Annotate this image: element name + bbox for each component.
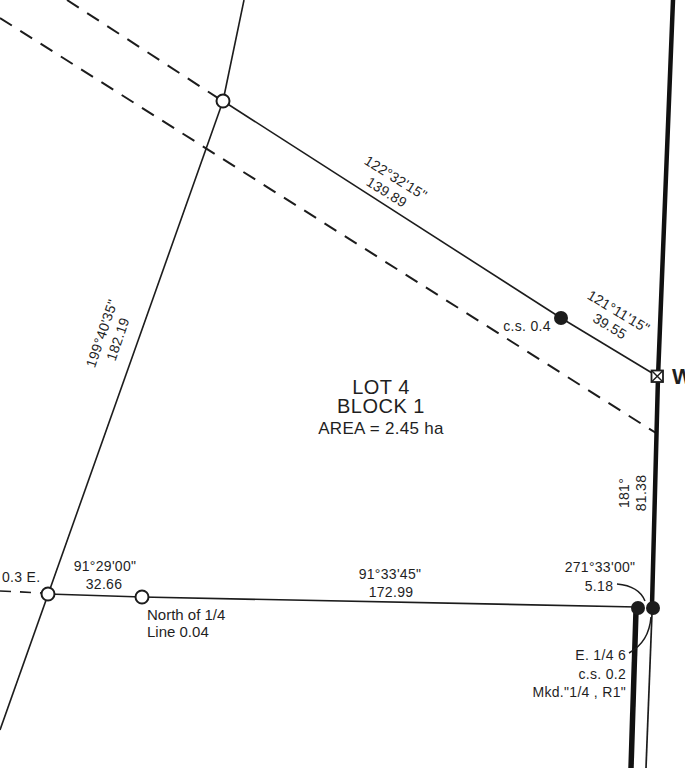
filled-monument-se-right <box>646 601 660 615</box>
road-line-lower <box>631 611 636 768</box>
east-line-bearing: 181° <box>616 478 632 508</box>
note-corner-line-1: E. 1/4 6 <box>575 647 626 663</box>
west-boundary-upper <box>223 0 244 101</box>
road-name-letter: W <box>672 364 685 389</box>
leader-5-18 <box>617 584 645 601</box>
south-seg1-distance: 32.66 <box>86 576 123 592</box>
label-north-seg2: 121°11'15" 39.55 <box>576 287 653 351</box>
open-monument-nw <box>217 95 230 108</box>
filled-monument-north <box>554 311 568 325</box>
road-line-upper <box>652 0 673 606</box>
note-quarter-line-2: Line 0.04 <box>147 623 209 640</box>
east-thin-line-lower <box>646 613 652 768</box>
south-seg2-bearing: 91°33'45" <box>359 566 422 582</box>
note-quarter-line-1: North of 1/4 <box>147 606 225 623</box>
open-monument-sw <box>42 588 55 601</box>
label-east-line: 181° 81.38 <box>616 475 649 512</box>
note-cs-north: c.s. 0.4 <box>503 318 551 334</box>
label-west-line: 199°40'35" 182.19 <box>83 297 137 375</box>
label-north-seg1: 122°32'15" 139.89 <box>353 152 430 217</box>
lot-area: AREA = 2.45 ha <box>318 419 444 438</box>
boxed-x-monument <box>652 371 664 383</box>
filled-monument-se-left <box>631 601 645 615</box>
south-dashed-extension <box>0 591 42 593</box>
dashed-offset-line-lower <box>0 18 656 433</box>
survey-plat: 122°32'15" 139.89 121°11'15" 39.55 199°4… <box>0 0 685 768</box>
south-seg1-bearing: 91°29'00" <box>74 558 137 574</box>
north-boundary-seg1 <box>223 101 561 318</box>
plat-drawing: 122°32'15" 139.89 121°11'15" 39.55 199°4… <box>0 0 685 768</box>
south-tie-bearing: 271°33'00" <box>565 559 636 575</box>
south-tie-distance: 5.18 <box>585 578 613 594</box>
lot-block: BLOCK 1 <box>337 395 425 417</box>
dashed-offset-line-upper <box>67 0 221 100</box>
open-monument-south <box>136 591 149 604</box>
east-line-distance: 81.38 <box>633 475 649 512</box>
note-corner-line-3: Mkd."1/4 , R1" <box>532 684 626 700</box>
south-seg2-distance: 172.99 <box>369 584 414 600</box>
note-offset-east: 0.3 E. <box>2 569 40 585</box>
note-corner-line-2: c.s. 0.2 <box>578 666 626 682</box>
